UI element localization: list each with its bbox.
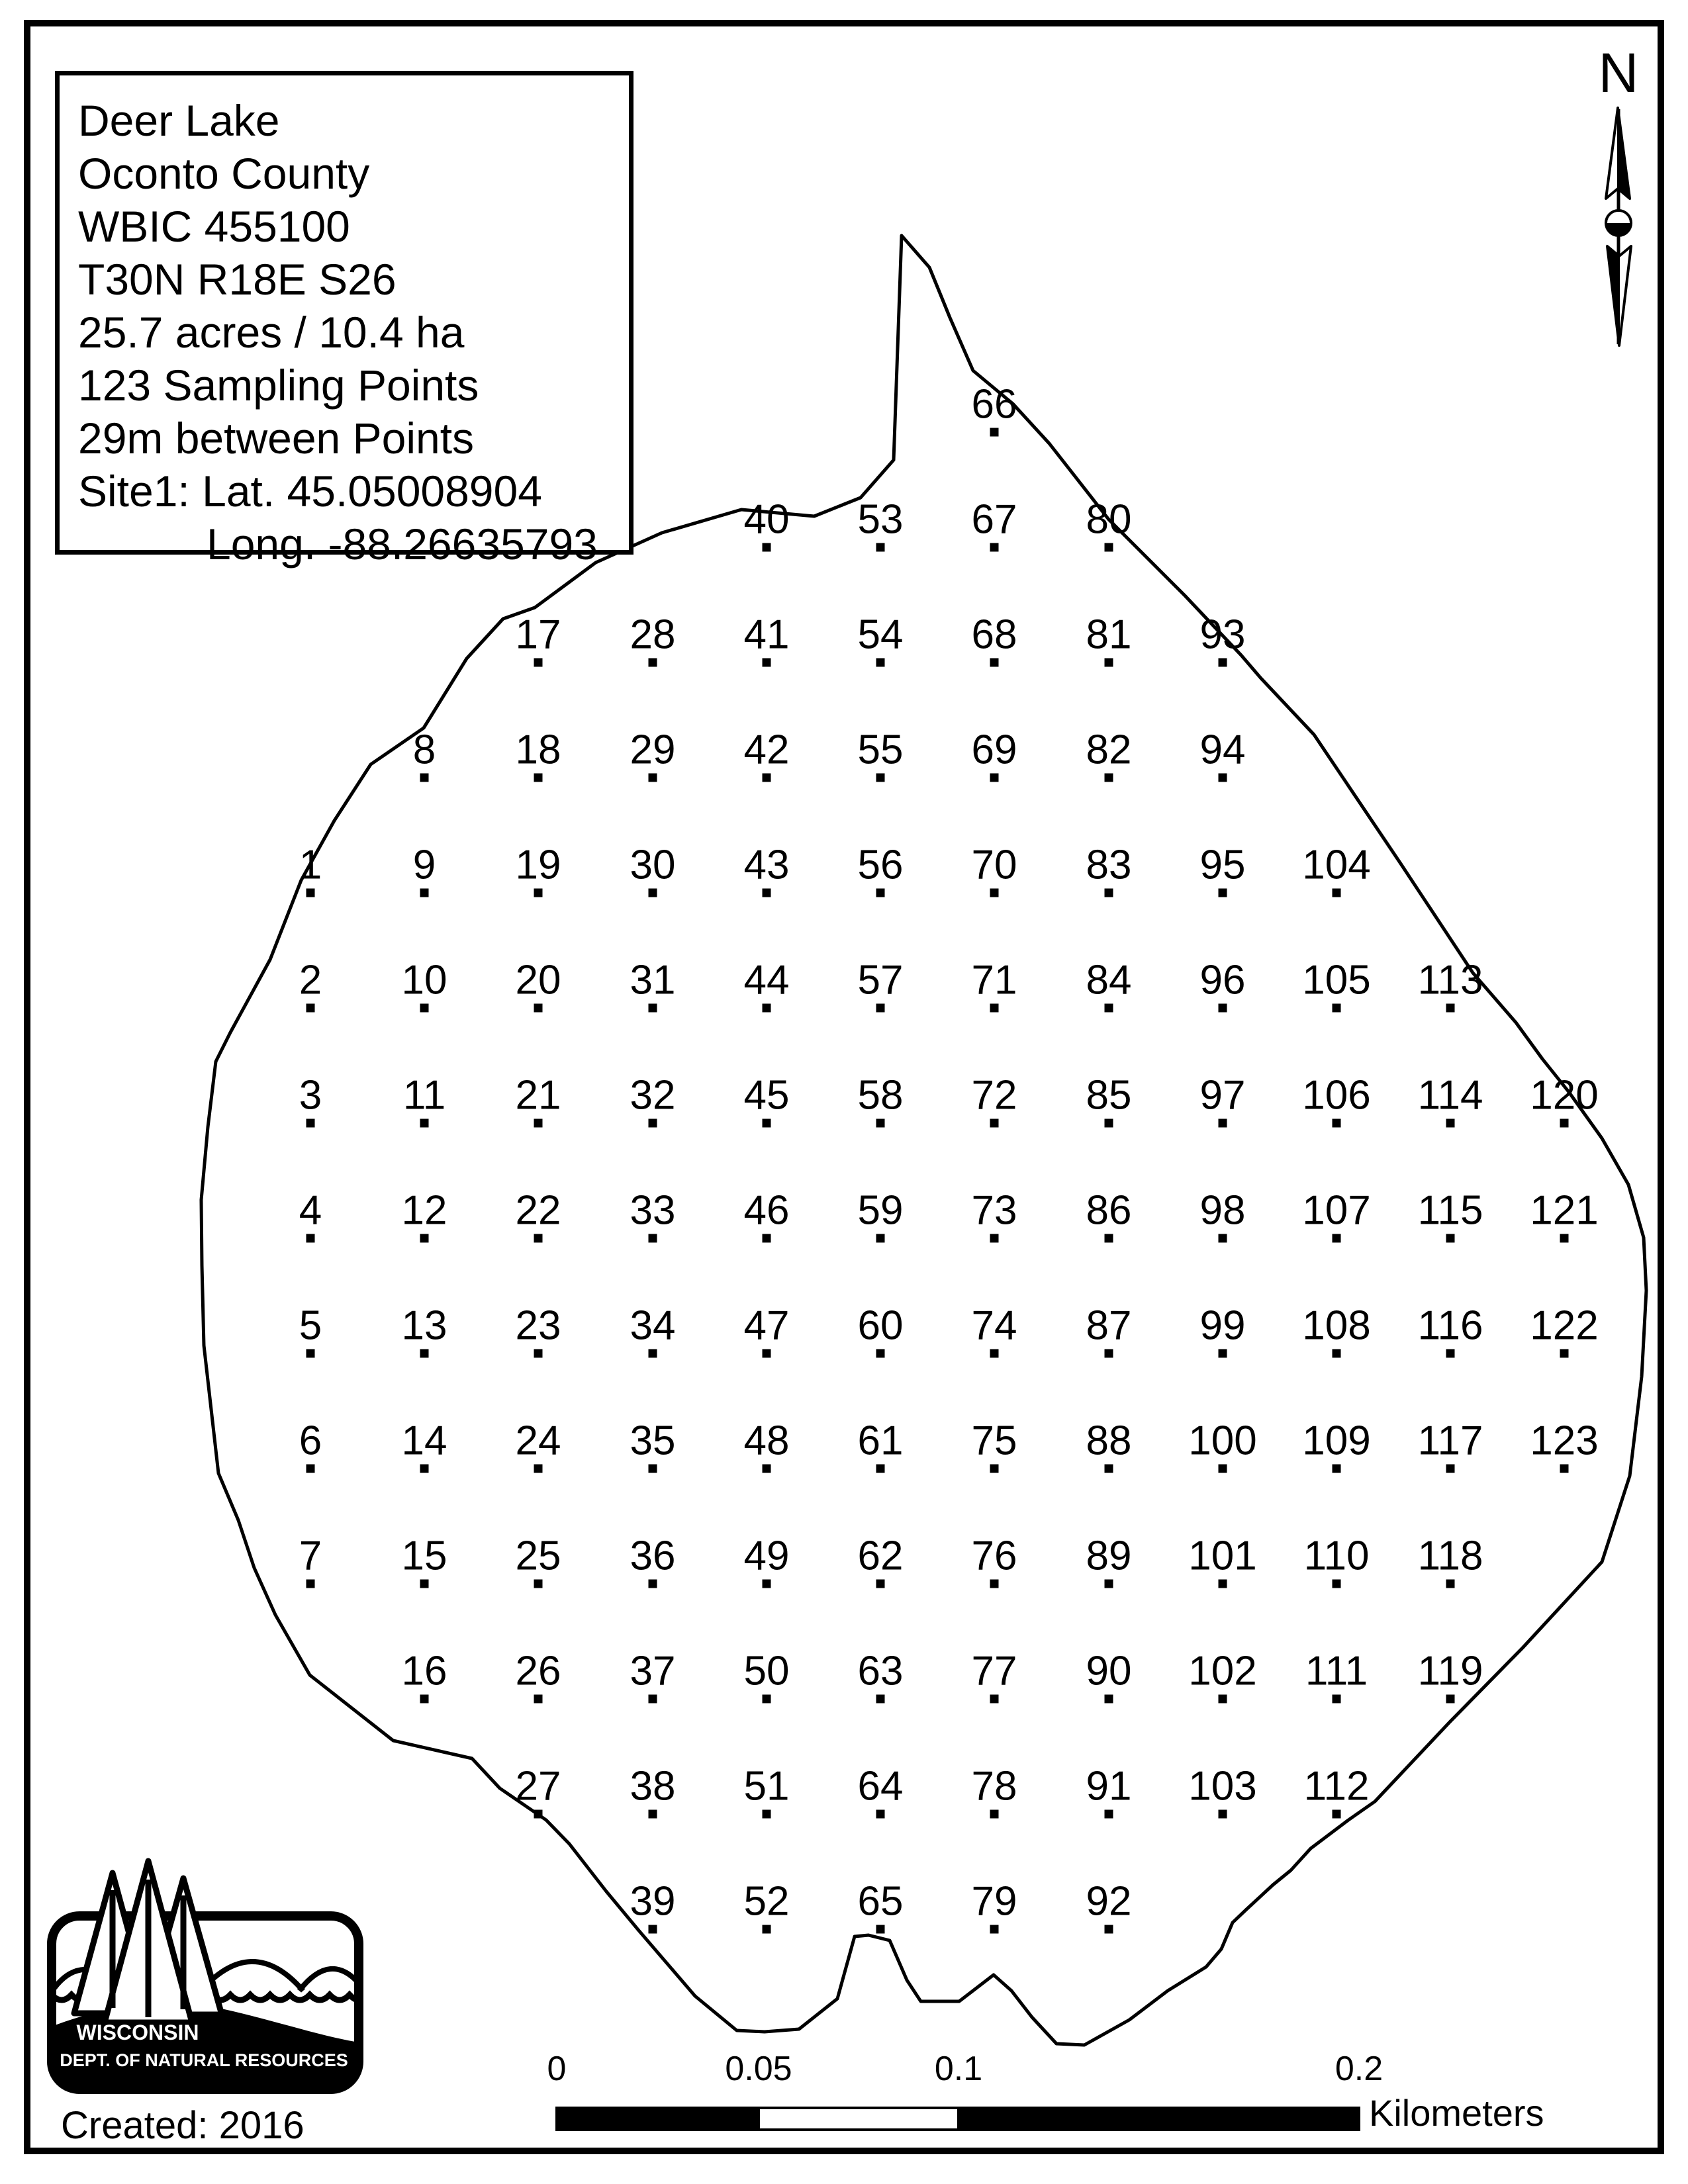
sampling-point-dot xyxy=(1219,1695,1227,1704)
sampling-point-dot xyxy=(649,1925,657,1934)
lake-info-box: Deer LakeOconto CountyWBIC 455100T30N R1… xyxy=(55,71,633,555)
sampling-point-dot xyxy=(306,1465,315,1473)
sampling-point-dot xyxy=(876,1004,885,1013)
sampling-point-dot xyxy=(990,889,999,897)
sampling-point-label: 100 xyxy=(1188,1418,1256,1465)
sampling-point-label: 85 xyxy=(1086,1072,1132,1119)
sampling-point-label: 93 xyxy=(1200,612,1246,659)
scale-tick-label: 0.2 xyxy=(1335,2049,1383,2089)
sampling-point-dot xyxy=(876,1119,885,1128)
sampling-point-dot xyxy=(763,1695,771,1704)
sampling-point-label: 31 xyxy=(630,957,676,1004)
sampling-point-label: 19 xyxy=(516,842,561,889)
sampling-point-dot xyxy=(1446,1695,1455,1704)
sampling-point-label: 24 xyxy=(516,1418,561,1465)
sampling-point-dot xyxy=(1105,1580,1113,1588)
sampling-point-label: 74 xyxy=(972,1302,1017,1349)
sampling-point-dot xyxy=(1560,1119,1569,1128)
sampling-point-label: 58 xyxy=(858,1072,904,1119)
sampling-point-dot xyxy=(876,1349,885,1358)
sampling-point-dot xyxy=(649,659,657,667)
info-line: Deer Lake xyxy=(78,94,280,147)
sampling-point-dot xyxy=(1446,1349,1455,1358)
created-caption: Created: 2016 xyxy=(61,2103,305,2148)
sampling-point-dot xyxy=(990,1349,999,1358)
sampling-point-label: 60 xyxy=(858,1302,904,1349)
sampling-point-dot xyxy=(990,428,999,437)
sampling-point-label: 22 xyxy=(516,1187,561,1234)
sampling-point-label: 123 xyxy=(1530,1418,1598,1465)
sampling-point-dot xyxy=(763,1004,771,1013)
sampling-point-label: 21 xyxy=(516,1072,561,1119)
sampling-point-dot xyxy=(876,1580,885,1588)
sampling-point-dot xyxy=(1219,1580,1227,1588)
sampling-point-label: 72 xyxy=(972,1072,1017,1119)
sampling-point-dot xyxy=(1105,1925,1113,1934)
sampling-point-label: 39 xyxy=(630,1878,676,1925)
sampling-point-label: 90 xyxy=(1086,1648,1132,1695)
sampling-point-dot xyxy=(1105,1004,1113,1013)
sampling-point-label: 1 xyxy=(299,842,322,889)
sampling-point-label: 13 xyxy=(402,1302,447,1349)
sampling-point-dot xyxy=(1333,1004,1341,1013)
sampling-point-label: 62 xyxy=(858,1533,904,1580)
sampling-point-label: 7 xyxy=(299,1533,322,1580)
sampling-point-label: 97 xyxy=(1200,1072,1246,1119)
sampling-point-label: 43 xyxy=(744,842,790,889)
sampling-point-label: 2 xyxy=(299,957,322,1004)
sampling-point-dot xyxy=(1105,1695,1113,1704)
sampling-point-dot xyxy=(763,889,771,897)
sampling-point-dot xyxy=(763,1234,771,1243)
sampling-point-label: 94 xyxy=(1200,727,1246,774)
sampling-point-label: 28 xyxy=(630,612,676,659)
sampling-point-label: 3 xyxy=(299,1072,322,1119)
sampling-point-dot xyxy=(763,774,771,782)
sampling-point-dot xyxy=(1105,774,1113,782)
sampling-point-label: 114 xyxy=(1418,1072,1483,1119)
sampling-point-dot xyxy=(1105,1810,1113,1819)
sampling-point-dot xyxy=(420,1349,429,1358)
sampling-point-dot xyxy=(1105,659,1113,667)
sampling-point-dot xyxy=(876,1810,885,1819)
sampling-point-label: 70 xyxy=(972,842,1017,889)
sampling-point-dot xyxy=(1219,1349,1227,1358)
sampling-point-label: 25 xyxy=(516,1533,561,1580)
sampling-point-label: 65 xyxy=(858,1878,904,1925)
sampling-point-dot xyxy=(876,1465,885,1473)
sampling-point-dot xyxy=(534,1695,543,1704)
sampling-point-label: 40 xyxy=(744,496,790,543)
sampling-point-label: 29 xyxy=(630,727,676,774)
sampling-point-label: 17 xyxy=(516,612,561,659)
sampling-point-label: 42 xyxy=(744,727,790,774)
sampling-point-dot xyxy=(649,889,657,897)
info-line: Long. -88.26635793 xyxy=(207,518,598,570)
sampling-point-label: 30 xyxy=(630,842,676,889)
sampling-point-label: 121 xyxy=(1530,1187,1598,1234)
sampling-point-label: 38 xyxy=(630,1763,676,1810)
sampling-point-dot xyxy=(876,1925,885,1934)
sampling-point-label: 83 xyxy=(1086,842,1132,889)
scale-tick-label: 0.1 xyxy=(935,2049,982,2089)
sampling-point-label: 69 xyxy=(972,727,1017,774)
sampling-point-dot xyxy=(1105,1349,1113,1358)
sampling-point-dot xyxy=(876,1695,885,1704)
sampling-point-dot xyxy=(763,543,771,552)
sampling-point-dot xyxy=(420,1695,429,1704)
sampling-point-dot xyxy=(534,774,543,782)
sampling-point-dot xyxy=(306,1119,315,1128)
sampling-point-dot xyxy=(306,1234,315,1243)
sampling-point-label: 80 xyxy=(1086,496,1132,543)
sampling-point-dot xyxy=(649,1234,657,1243)
sampling-point-label: 12 xyxy=(402,1187,447,1234)
sampling-point-label: 10 xyxy=(402,957,447,1004)
info-line: Oconto County xyxy=(78,147,369,200)
sampling-point-dot xyxy=(990,1119,999,1128)
info-line: WBIC 455100 xyxy=(78,200,350,253)
sampling-point-dot xyxy=(534,1810,543,1819)
sampling-point-dot xyxy=(1560,1234,1569,1243)
sampling-point-label: 92 xyxy=(1086,1878,1132,1925)
sampling-point-label: 102 xyxy=(1188,1648,1256,1695)
sampling-point-dot xyxy=(763,1465,771,1473)
sampling-point-label: 64 xyxy=(858,1763,904,1810)
sampling-point-dot xyxy=(306,1004,315,1013)
sampling-point-label: 87 xyxy=(1086,1302,1132,1349)
sampling-point-dot xyxy=(763,1925,771,1934)
sampling-point-dot xyxy=(876,543,885,552)
sampling-point-dot xyxy=(420,774,429,782)
sampling-point-dot xyxy=(1219,1465,1227,1473)
sampling-point-label: 113 xyxy=(1418,957,1483,1004)
sampling-point-dot xyxy=(1333,1119,1341,1128)
sampling-point-dot xyxy=(990,1810,999,1819)
sampling-point-label: 106 xyxy=(1302,1072,1370,1119)
sampling-point-label: 110 xyxy=(1304,1533,1370,1580)
sampling-point-label: 99 xyxy=(1200,1302,1246,1349)
sampling-point-dot xyxy=(534,1580,543,1588)
sampling-point-label: 14 xyxy=(402,1418,447,1465)
sampling-point-label: 41 xyxy=(744,612,790,659)
sampling-point-dot xyxy=(534,1349,543,1358)
sampling-point-label: 111 xyxy=(1305,1648,1368,1695)
sampling-point-label: 36 xyxy=(630,1533,676,1580)
sampling-point-label: 73 xyxy=(972,1187,1017,1234)
sampling-point-dot xyxy=(1105,1465,1113,1473)
sampling-point-label: 26 xyxy=(516,1648,561,1695)
sampling-point-dot xyxy=(649,1004,657,1013)
sampling-point-dot xyxy=(306,1349,315,1358)
sampling-point-label: 117 xyxy=(1418,1418,1483,1465)
sampling-point-dot xyxy=(1446,1580,1455,1588)
sampling-point-dot xyxy=(763,1349,771,1358)
sampling-point-label: 35 xyxy=(630,1418,676,1465)
sampling-point-label: 116 xyxy=(1418,1302,1483,1349)
sampling-point-label: 71 xyxy=(972,957,1017,1004)
sampling-point-label: 89 xyxy=(1086,1533,1132,1580)
sampling-point-label: 51 xyxy=(744,1763,790,1810)
sampling-point-dot xyxy=(990,1580,999,1588)
sampling-point-dot xyxy=(534,889,543,897)
sampling-point-label: 18 xyxy=(516,727,561,774)
info-line: T30N R18E S26 xyxy=(78,253,397,306)
sampling-point-dot xyxy=(649,1810,657,1819)
sampling-point-label: 23 xyxy=(516,1302,561,1349)
sampling-point-dot xyxy=(876,1234,885,1243)
sampling-point-dot xyxy=(1333,1695,1341,1704)
sampling-point-label: 91 xyxy=(1086,1763,1132,1810)
sampling-point-dot xyxy=(1105,543,1113,552)
sampling-point-dot xyxy=(534,659,543,667)
sampling-point-label: 27 xyxy=(516,1763,561,1810)
sampling-point-dot xyxy=(1333,1580,1341,1588)
sampling-point-label: 56 xyxy=(858,842,904,889)
sampling-point-label: 47 xyxy=(744,1302,790,1349)
sampling-point-dot xyxy=(420,1580,429,1588)
sampling-point-label: 86 xyxy=(1086,1187,1132,1234)
sampling-point-dot xyxy=(990,659,999,667)
sampling-point-dot xyxy=(306,889,315,897)
sampling-point-dot xyxy=(763,659,771,667)
sampling-point-dot xyxy=(1219,1810,1227,1819)
sampling-point-dot xyxy=(876,774,885,782)
sampling-point-dot xyxy=(763,1580,771,1588)
sampling-point-label: 67 xyxy=(972,496,1017,543)
sampling-point-label: 101 xyxy=(1188,1533,1256,1580)
sampling-point-dot xyxy=(990,1234,999,1243)
sampling-point-label: 15 xyxy=(402,1533,447,1580)
scale-tick-label: 0 xyxy=(547,2049,567,2089)
sampling-point-dot xyxy=(1219,1234,1227,1243)
sampling-point-label: 98 xyxy=(1200,1187,1246,1234)
sampling-point-label: 11 xyxy=(403,1072,445,1119)
sampling-point-dot xyxy=(420,1004,429,1013)
sampling-point-label: 5 xyxy=(299,1302,322,1349)
sampling-point-dot xyxy=(534,1004,543,1013)
sampling-point-label: 76 xyxy=(972,1533,1017,1580)
sampling-point-label: 79 xyxy=(972,1878,1017,1925)
sampling-point-dot xyxy=(534,1465,543,1473)
sampling-point-label: 88 xyxy=(1086,1418,1132,1465)
sampling-point-dot xyxy=(420,1119,429,1128)
sampling-point-label: 66 xyxy=(972,381,1017,428)
sampling-point-dot xyxy=(1219,1004,1227,1013)
sampling-point-dot xyxy=(1446,1465,1455,1473)
sampling-point-label: 52 xyxy=(744,1878,790,1925)
sampling-point-dot xyxy=(1105,1119,1113,1128)
sampling-point-label: 59 xyxy=(858,1187,904,1234)
sampling-point-dot xyxy=(763,1810,771,1819)
sampling-point-dot xyxy=(649,774,657,782)
sampling-point-dot xyxy=(1446,1234,1455,1243)
sampling-point-label: 6 xyxy=(299,1418,322,1465)
sampling-point-dot xyxy=(649,1119,657,1128)
sampling-point-dot xyxy=(876,889,885,897)
sampling-point-label: 112 xyxy=(1304,1763,1370,1810)
sampling-point-label: 57 xyxy=(858,957,904,1004)
sampling-point-dot xyxy=(1333,1234,1341,1243)
sampling-point-label: 53 xyxy=(858,496,904,543)
sampling-point-label: 9 xyxy=(413,842,436,889)
sampling-point-label: 109 xyxy=(1302,1418,1370,1465)
sampling-point-label: 4 xyxy=(299,1187,322,1234)
sampling-point-label: 119 xyxy=(1418,1648,1483,1695)
sampling-point-dot xyxy=(420,1465,429,1473)
sampling-point-label: 45 xyxy=(744,1072,790,1119)
sampling-point-dot xyxy=(1333,889,1341,897)
sampling-point-dot xyxy=(990,774,999,782)
sampling-point-label: 104 xyxy=(1302,842,1370,889)
sampling-point-dot xyxy=(649,1349,657,1358)
scale-bar-unit: Kilometers xyxy=(1369,2091,1544,2134)
sampling-point-label: 33 xyxy=(630,1187,676,1234)
sampling-point-dot xyxy=(876,659,885,667)
sampling-point-dot xyxy=(1446,1004,1455,1013)
sampling-point-label: 49 xyxy=(744,1533,790,1580)
info-line: 29m between Points xyxy=(78,412,474,465)
sampling-point-label: 118 xyxy=(1418,1533,1483,1580)
sampling-point-label: 105 xyxy=(1302,957,1370,1004)
sampling-point-label: 120 xyxy=(1530,1072,1598,1119)
sampling-point-label: 95 xyxy=(1200,842,1246,889)
sampling-point-label: 44 xyxy=(744,957,790,1004)
sampling-point-dot xyxy=(534,1119,543,1128)
sampling-point-dot xyxy=(1105,889,1113,897)
sampling-point-label: 61 xyxy=(858,1418,904,1465)
sampling-point-dot xyxy=(1219,889,1227,897)
north-label: N xyxy=(1575,41,1662,105)
sampling-point-dot xyxy=(420,889,429,897)
sampling-point-dot xyxy=(990,1465,999,1473)
sampling-point-label: 8 xyxy=(413,727,436,774)
sampling-point-label: 108 xyxy=(1302,1302,1370,1349)
sampling-point-dot xyxy=(1333,1349,1341,1358)
sampling-point-dot xyxy=(990,1695,999,1704)
info-line: 123 Sampling Points xyxy=(78,359,479,412)
sampling-point-dot xyxy=(1219,774,1227,782)
sampling-point-label: 63 xyxy=(858,1648,904,1695)
info-line: Site1: Lat. 45.05008904 xyxy=(78,465,542,518)
sampling-point-label: 82 xyxy=(1086,727,1132,774)
sampling-point-label: 68 xyxy=(972,612,1017,659)
sampling-point-label: 84 xyxy=(1086,957,1132,1004)
sampling-point-dot xyxy=(306,1580,315,1588)
sampling-point-dot xyxy=(1560,1465,1569,1473)
sampling-point-dot xyxy=(1219,1119,1227,1128)
sampling-point-dot xyxy=(1105,1234,1113,1243)
sampling-point-dot xyxy=(763,1119,771,1128)
sampling-point-dot xyxy=(649,1695,657,1704)
sampling-point-dot xyxy=(649,1580,657,1588)
sampling-point-dot xyxy=(990,1925,999,1934)
sampling-point-label: 48 xyxy=(744,1418,790,1465)
sampling-point-dot xyxy=(420,1234,429,1243)
sampling-point-label: 77 xyxy=(972,1648,1017,1695)
sampling-point-label: 81 xyxy=(1086,612,1132,659)
sampling-point-label: 75 xyxy=(972,1418,1017,1465)
sampling-point-dot xyxy=(1446,1119,1455,1128)
sampling-point-label: 34 xyxy=(630,1302,676,1349)
sampling-point-dot xyxy=(1333,1810,1341,1819)
sampling-point-label: 50 xyxy=(744,1648,790,1695)
sampling-point-dot xyxy=(990,543,999,552)
sampling-point-label: 20 xyxy=(516,957,561,1004)
sampling-point-label: 103 xyxy=(1188,1763,1256,1810)
sampling-point-dot xyxy=(534,1234,543,1243)
sampling-point-dot xyxy=(1333,1465,1341,1473)
sampling-point-label: 54 xyxy=(858,612,904,659)
sampling-point-label: 46 xyxy=(744,1187,790,1234)
sampling-point-dot xyxy=(990,1004,999,1013)
sampling-point-label: 16 xyxy=(402,1648,447,1695)
map-page: WISCONSIN DEPT. OF NATURAL RESOURCES Dee… xyxy=(0,0,1688,2184)
sampling-point-dot xyxy=(1560,1349,1569,1358)
sampling-point-dot xyxy=(649,1465,657,1473)
info-line: 25.7 acres / 10.4 ha xyxy=(78,306,464,359)
sampling-point-label: 78 xyxy=(972,1763,1017,1810)
sampling-point-label: 96 xyxy=(1200,957,1246,1004)
sampling-point-label: 55 xyxy=(858,727,904,774)
sampling-point-label: 32 xyxy=(630,1072,676,1119)
sampling-point-dot xyxy=(1219,659,1227,667)
sampling-point-label: 122 xyxy=(1530,1302,1598,1349)
scale-tick-label: 0.05 xyxy=(725,2049,792,2089)
sampling-point-label: 115 xyxy=(1418,1187,1483,1234)
sampling-point-label: 37 xyxy=(630,1648,676,1695)
sampling-point-label: 107 xyxy=(1302,1187,1370,1234)
